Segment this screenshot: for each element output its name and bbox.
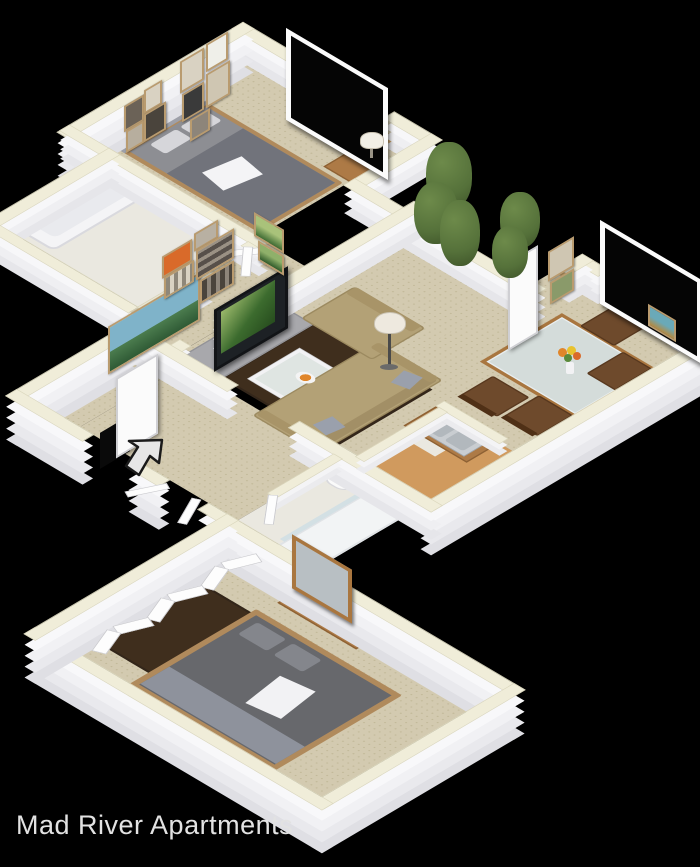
tree — [414, 142, 486, 272]
floorplan-canvas: Mad River Apartments — [0, 0, 700, 867]
tree — [492, 192, 550, 284]
bedroom2-door — [177, 498, 201, 525]
page-title: Mad River Apartments — [16, 810, 293, 841]
flower-vase — [558, 346, 582, 376]
entry-arrow-icon — [116, 436, 170, 498]
floor-lamp — [374, 312, 406, 372]
table-lamp — [360, 132, 384, 164]
